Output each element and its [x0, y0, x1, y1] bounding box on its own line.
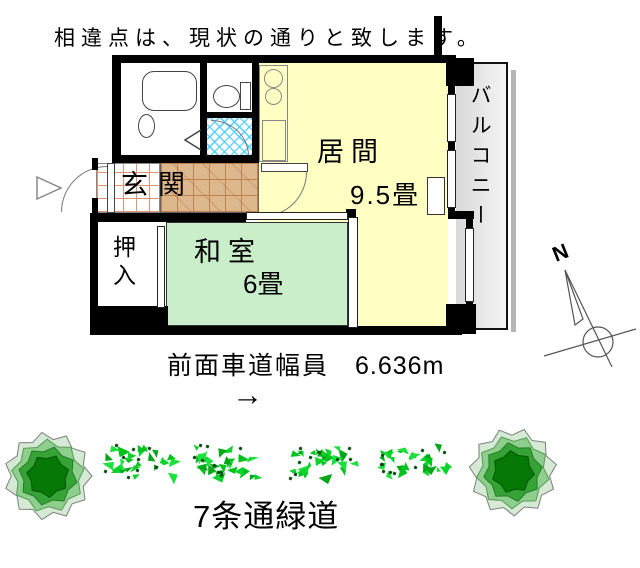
wash-basin	[138, 114, 155, 138]
pipe-shaft-box	[427, 177, 445, 215]
hedge-speck	[349, 458, 353, 462]
hedge-leaf	[227, 467, 238, 475]
hedge-segment	[192, 444, 270, 484]
living-room-label: 居間	[317, 137, 385, 168]
wall	[90, 326, 462, 335]
hedge-speck	[336, 458, 340, 462]
hedge-speck	[443, 451, 447, 455]
wall	[446, 304, 476, 334]
compass-circle	[583, 327, 613, 357]
hedge-speck	[309, 456, 313, 460]
wall	[160, 213, 246, 222]
window	[447, 150, 456, 208]
oshiire-label: 押入	[109, 235, 135, 291]
bathtub	[142, 71, 197, 111]
living-room-size: 9.5畳	[350, 181, 420, 211]
hedge-speck	[294, 473, 298, 477]
hedge-speck	[122, 456, 126, 460]
hedge-speck	[289, 477, 293, 481]
wall	[446, 58, 474, 86]
kitchen-lower-counter	[262, 120, 286, 161]
road-width-value: 6.636m	[355, 352, 444, 380]
hedge-leaf	[246, 455, 260, 463]
hedge-speck	[199, 444, 203, 448]
hedge-speck	[193, 456, 197, 460]
hedge-speck	[348, 447, 352, 451]
hedge-speck	[298, 461, 302, 465]
sliding-door	[157, 226, 165, 308]
entrance-door-arc	[61, 166, 107, 212]
road-width-label: 前面車道幅員	[167, 352, 329, 380]
hedge-speck	[136, 469, 140, 473]
hedge-speck	[132, 448, 136, 452]
bush-right	[467, 426, 559, 518]
compass-arrowhead	[565, 270, 583, 325]
wall	[112, 155, 259, 163]
hedge-speck	[421, 449, 425, 453]
hedge-speck	[206, 445, 210, 449]
wall	[112, 55, 121, 162]
road-direction-arrow: →	[232, 377, 263, 413]
hedge-speck	[104, 470, 108, 474]
hedge-segment	[377, 444, 455, 484]
compass-needle-line	[565, 270, 612, 367]
kitchen-sink-circle	[264, 69, 283, 88]
hedge-speck	[393, 472, 397, 476]
hedge-speck	[414, 466, 418, 470]
wall	[112, 55, 456, 63]
hedge-speck	[127, 476, 131, 480]
hedge-leaf	[288, 448, 300, 460]
washitsu-size: 6畳	[243, 270, 283, 300]
window	[447, 94, 456, 142]
hedge-speck	[155, 466, 159, 470]
hedge-speck	[382, 470, 386, 474]
kitchen-burner-circle	[265, 88, 282, 105]
hall-door-leaf	[261, 163, 308, 172]
balcony-shadow	[511, 70, 516, 332]
hedge-speck	[137, 458, 141, 462]
toilet-tank	[240, 82, 251, 110]
hedge-leaf	[166, 469, 181, 485]
hedge-leaf	[396, 445, 410, 454]
bush-left	[2, 430, 94, 522]
hedge-segment	[103, 444, 181, 484]
north-label: N	[549, 240, 572, 267]
hedge-speck	[148, 447, 152, 451]
entrance-door-leaf	[107, 163, 115, 213]
hedge-speck	[239, 447, 243, 451]
compass-cross-line	[544, 329, 636, 356]
wall	[92, 158, 98, 170]
bath-folding-door-icon	[183, 128, 205, 154]
window	[465, 228, 474, 302]
road-width-annotation: 前面車道幅員6.636m	[167, 352, 444, 381]
floorplan-page: 相違点は、現状の通りと致します。 玄関 居間 9.5畳 和室 6畳 押入 バルコ…	[0, 0, 640, 568]
hedge-speck	[299, 447, 303, 451]
sliding-door	[246, 212, 348, 220]
hedge-leaf	[131, 472, 140, 481]
toilet-bowl	[213, 85, 240, 108]
north-compass: N	[532, 222, 640, 367]
genkan-label: 玄関	[121, 170, 195, 201]
hedge-leaf	[407, 450, 422, 461]
washitsu-label: 和室	[194, 237, 262, 268]
wall	[90, 213, 168, 222]
entrance-direction-triangle-icon	[36, 176, 64, 202]
wall	[252, 63, 259, 163]
wall	[203, 112, 257, 118]
hedge-segment	[287, 444, 365, 484]
sliding-door	[348, 217, 358, 328]
disclaimer-text: 相違点は、現状の通りと致します。	[54, 27, 484, 51]
hedge-leaf	[234, 451, 250, 467]
greenway-label: 7条通緑道	[193, 499, 339, 535]
balcony-label: バルコニー	[467, 84, 491, 234]
hedge-leaf	[318, 471, 335, 486]
